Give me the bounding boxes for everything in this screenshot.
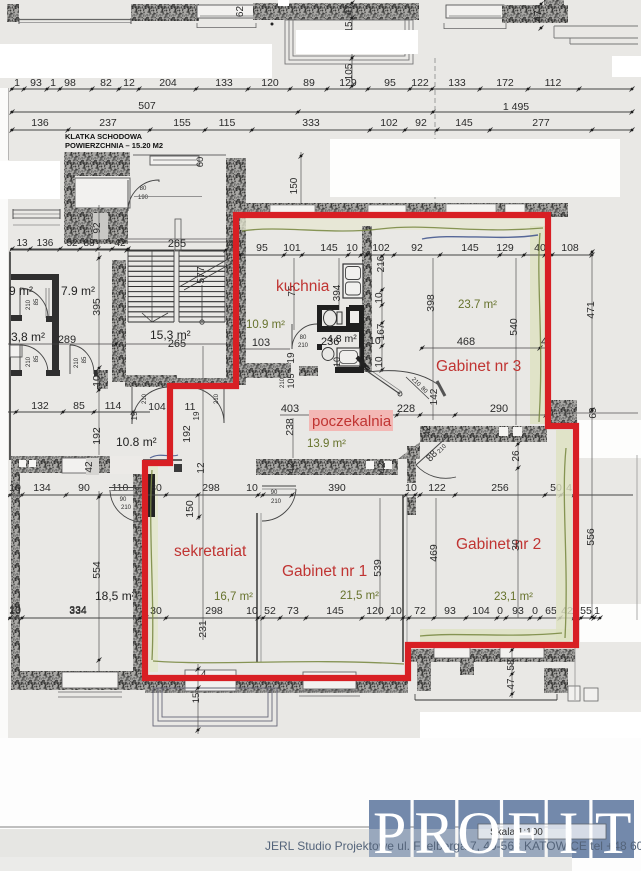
svg-text:210: 210: [142, 393, 148, 404]
svg-text:92: 92: [411, 242, 423, 254]
svg-text:0: 0: [497, 605, 503, 617]
svg-text:216: 216: [376, 255, 387, 272]
svg-text:390: 390: [328, 482, 346, 494]
svg-text:19: 19: [192, 411, 201, 420]
svg-text:21,5 m²: 21,5 m²: [340, 590, 379, 602]
svg-text:55: 55: [580, 605, 592, 617]
svg-text:333: 333: [302, 117, 320, 129]
svg-text:105: 105: [286, 373, 296, 388]
svg-text:90: 90: [120, 497, 127, 503]
svg-text:73: 73: [287, 605, 299, 617]
svg-text:12: 12: [196, 462, 207, 474]
svg-text:210: 210: [280, 377, 286, 388]
svg-text:112: 112: [545, 77, 562, 89]
svg-text:60: 60: [195, 157, 206, 168]
svg-text:102: 102: [380, 117, 398, 129]
svg-text:10: 10: [91, 375, 103, 387]
svg-text:298: 298: [205, 605, 223, 617]
svg-text:507: 507: [138, 100, 156, 112]
svg-text:145: 145: [326, 605, 344, 617]
svg-text:145: 145: [320, 242, 338, 254]
svg-text:42: 42: [377, 462, 388, 474]
svg-text:104: 104: [148, 401, 166, 413]
svg-text:10: 10: [374, 292, 385, 304]
svg-text:15: 15: [191, 693, 202, 704]
svg-text:10.9 m²: 10.9 m²: [246, 319, 285, 331]
svg-text:16,7 m²: 16,7 m²: [214, 591, 253, 603]
svg-text:108: 108: [561, 242, 579, 254]
svg-text:167: 167: [376, 323, 387, 340]
svg-text:F: F: [507, 800, 540, 866]
svg-text:192: 192: [91, 427, 103, 445]
svg-text:394: 394: [332, 284, 343, 301]
svg-text:80: 80: [300, 335, 307, 341]
svg-text:210: 210: [26, 299, 32, 310]
svg-text:237: 237: [99, 117, 117, 129]
svg-text:KLATKA SCHODOWA: KLATKA SCHODOWA: [65, 132, 143, 141]
svg-text:114: 114: [105, 400, 122, 412]
svg-text:210: 210: [121, 505, 132, 511]
svg-text:69: 69: [588, 407, 599, 419]
svg-text:238: 238: [284, 418, 296, 436]
svg-text:132: 132: [31, 400, 49, 412]
svg-text:277: 277: [532, 117, 550, 129]
svg-text:9 m²: 9 m²: [9, 284, 33, 298]
svg-text:40: 40: [534, 242, 546, 254]
svg-text:sekretariat: sekretariat: [174, 543, 247, 560]
svg-text:85: 85: [34, 355, 40, 362]
svg-text:204: 204: [159, 77, 177, 89]
svg-text:4,8 m²: 4,8 m²: [327, 333, 357, 345]
svg-text:104: 104: [472, 605, 490, 617]
svg-text:1: 1: [594, 605, 600, 617]
svg-text:395: 395: [91, 298, 103, 316]
svg-text:172: 172: [496, 77, 514, 89]
svg-text:T: T: [595, 800, 632, 866]
svg-text:13: 13: [16, 238, 28, 249]
svg-text:210: 210: [26, 356, 32, 367]
svg-text:122: 122: [428, 482, 446, 494]
svg-text:42: 42: [422, 425, 433, 437]
svg-text:23,1 m²: 23,1 m²: [494, 591, 533, 603]
svg-text:Gabinet nr 2: Gabinet nr 2: [456, 536, 541, 553]
svg-text:398: 398: [425, 294, 437, 312]
svg-text:42: 42: [114, 238, 126, 249]
svg-text:145: 145: [455, 117, 473, 129]
svg-text:Gabinet nr 3: Gabinet nr 3: [436, 358, 521, 375]
svg-text:R: R: [414, 800, 454, 866]
svg-text:120: 120: [261, 77, 279, 89]
svg-text:O: O: [457, 800, 500, 866]
svg-text:10: 10: [346, 242, 358, 254]
svg-text:10: 10: [390, 605, 402, 617]
svg-text:403: 403: [281, 403, 299, 415]
svg-text:134: 134: [33, 482, 51, 494]
svg-text:19: 19: [130, 411, 139, 420]
svg-text:133: 133: [448, 77, 466, 89]
svg-text:256: 256: [491, 482, 509, 494]
svg-text:210: 210: [74, 357, 80, 368]
svg-text:93: 93: [444, 605, 456, 617]
svg-text:102: 102: [372, 242, 390, 254]
svg-text:kuchnia: kuchnia: [276, 278, 330, 295]
svg-text:90: 90: [271, 490, 278, 496]
svg-text:62: 62: [235, 6, 246, 18]
svg-text:42: 42: [286, 462, 297, 474]
svg-text:26: 26: [511, 450, 522, 462]
svg-text:11: 11: [185, 401, 196, 413]
svg-text:192: 192: [181, 425, 193, 443]
svg-text:556: 556: [585, 528, 597, 546]
svg-text:92: 92: [92, 222, 103, 234]
svg-text:88: 88: [83, 238, 95, 249]
svg-text:129: 129: [339, 77, 357, 89]
svg-text:290: 290: [490, 403, 508, 415]
svg-text:I: I: [559, 800, 579, 866]
svg-text:1 495: 1 495: [503, 101, 529, 113]
svg-text:103: 103: [252, 337, 270, 349]
svg-text:7.9 m²: 7.9 m²: [61, 284, 95, 298]
svg-text:10: 10: [246, 482, 258, 494]
svg-text:1: 1: [50, 77, 56, 89]
svg-text:10: 10: [332, 357, 342, 367]
svg-text:92: 92: [415, 117, 427, 129]
svg-text:P: P: [373, 800, 406, 866]
svg-text:10: 10: [246, 605, 258, 617]
svg-text:47: 47: [532, 10, 544, 22]
svg-text:115: 115: [219, 117, 236, 129]
svg-text:0: 0: [532, 605, 538, 617]
svg-text:334: 334: [69, 605, 87, 617]
svg-text:3,8 m²: 3,8 m²: [11, 330, 45, 344]
svg-text:150: 150: [289, 177, 300, 194]
svg-text:471: 471: [585, 301, 597, 319]
svg-text:122: 122: [411, 77, 429, 89]
svg-text:Gabinet nr 1: Gabinet nr 1: [282, 563, 367, 580]
svg-text:540: 540: [508, 318, 520, 336]
svg-text:65: 65: [545, 605, 557, 617]
svg-text:58: 58: [506, 659, 517, 671]
svg-text:265: 265: [168, 238, 186, 250]
svg-text:23.7 m²: 23.7 m²: [458, 299, 497, 311]
svg-text:82: 82: [100, 77, 112, 89]
svg-text:10: 10: [9, 482, 21, 494]
svg-text:142: 142: [429, 388, 440, 405]
svg-text:52: 52: [66, 238, 78, 249]
svg-text:101: 101: [283, 242, 301, 254]
svg-text:539: 539: [372, 559, 384, 577]
svg-text:47: 47: [344, 4, 355, 16]
svg-text:72: 72: [414, 605, 426, 617]
svg-text:42: 42: [84, 461, 95, 473]
svg-text:98: 98: [64, 77, 76, 89]
svg-text:85: 85: [34, 298, 40, 305]
svg-text:150: 150: [184, 500, 196, 518]
svg-text:12: 12: [123, 77, 135, 89]
svg-text:136: 136: [37, 238, 54, 249]
svg-text:1: 1: [14, 77, 20, 89]
svg-text:93: 93: [30, 77, 42, 89]
svg-text:155: 155: [173, 117, 191, 129]
svg-text:95: 95: [256, 242, 268, 254]
svg-text:210: 210: [214, 393, 220, 404]
svg-text:30: 30: [510, 539, 522, 551]
svg-text:468: 468: [457, 336, 475, 348]
svg-text:80: 80: [140, 186, 147, 192]
svg-text:10: 10: [374, 356, 385, 368]
svg-text:47: 47: [506, 678, 517, 690]
svg-text:85: 85: [73, 400, 85, 412]
svg-text:298: 298: [202, 482, 220, 494]
svg-text:10.8 m²: 10.8 m²: [116, 435, 157, 449]
svg-text:19: 19: [286, 352, 297, 364]
svg-text:95: 95: [384, 77, 396, 89]
svg-text:13.9 m²: 13.9 m²: [307, 438, 346, 450]
svg-text:poczekalnia: poczekalnia: [312, 413, 392, 430]
svg-text:18,5 m²: 18,5 m²: [95, 589, 136, 603]
svg-text:190: 190: [138, 195, 149, 201]
svg-text:89: 89: [303, 77, 315, 89]
svg-text:210: 210: [271, 499, 282, 505]
svg-text:145: 145: [461, 242, 479, 254]
svg-text:10: 10: [405, 482, 417, 494]
svg-text:136: 136: [31, 117, 49, 129]
svg-text:133: 133: [215, 77, 233, 89]
svg-text:POWIERZCHNIA – 15.20 M2: POWIERZCHNIA – 15.20 M2: [65, 141, 163, 150]
svg-text:469: 469: [428, 544, 440, 562]
svg-text:577: 577: [195, 266, 207, 284]
svg-text:10: 10: [9, 605, 21, 617]
svg-text:52: 52: [264, 605, 276, 617]
svg-text:554: 554: [91, 561, 103, 579]
svg-text:228: 228: [397, 403, 415, 415]
svg-text:85: 85: [82, 356, 88, 363]
svg-text:120: 120: [366, 605, 384, 617]
svg-text:90: 90: [78, 482, 90, 494]
svg-text:210: 210: [298, 343, 309, 349]
svg-text:129: 129: [496, 242, 514, 254]
